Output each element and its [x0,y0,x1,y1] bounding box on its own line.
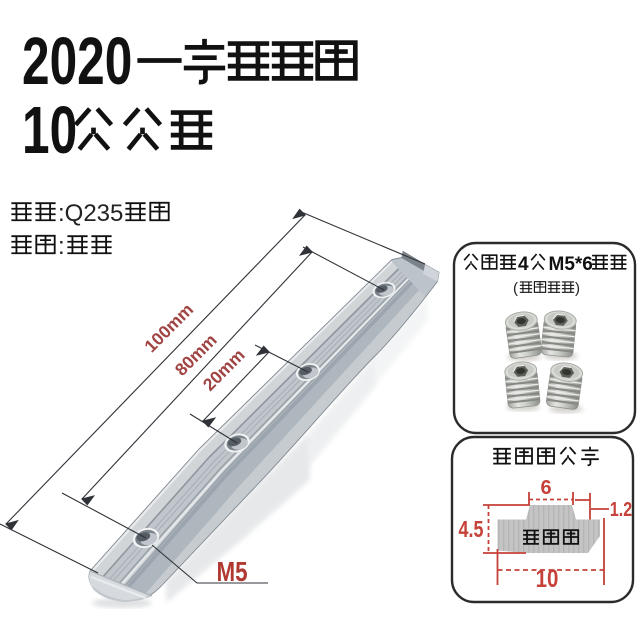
svg-text:4.5: 4.5 [459,517,484,543]
svg-text:M5: M5 [216,557,247,588]
svg-text:(: ( [513,280,518,297]
svg-text::Q235: :Q235 [58,200,123,227]
svg-text:10: 10 [536,564,559,592]
svg-text:6: 6 [540,477,551,499]
svg-text:): ) [575,280,580,297]
svg-text:10: 10 [22,94,77,168]
svg-text:2020: 2020 [22,25,132,99]
svg-text:1.2: 1.2 [610,498,632,520]
svg-text::: : [58,233,65,260]
svg-text:4: 4 [518,254,529,275]
svg-text:M5*6: M5*6 [549,254,593,275]
